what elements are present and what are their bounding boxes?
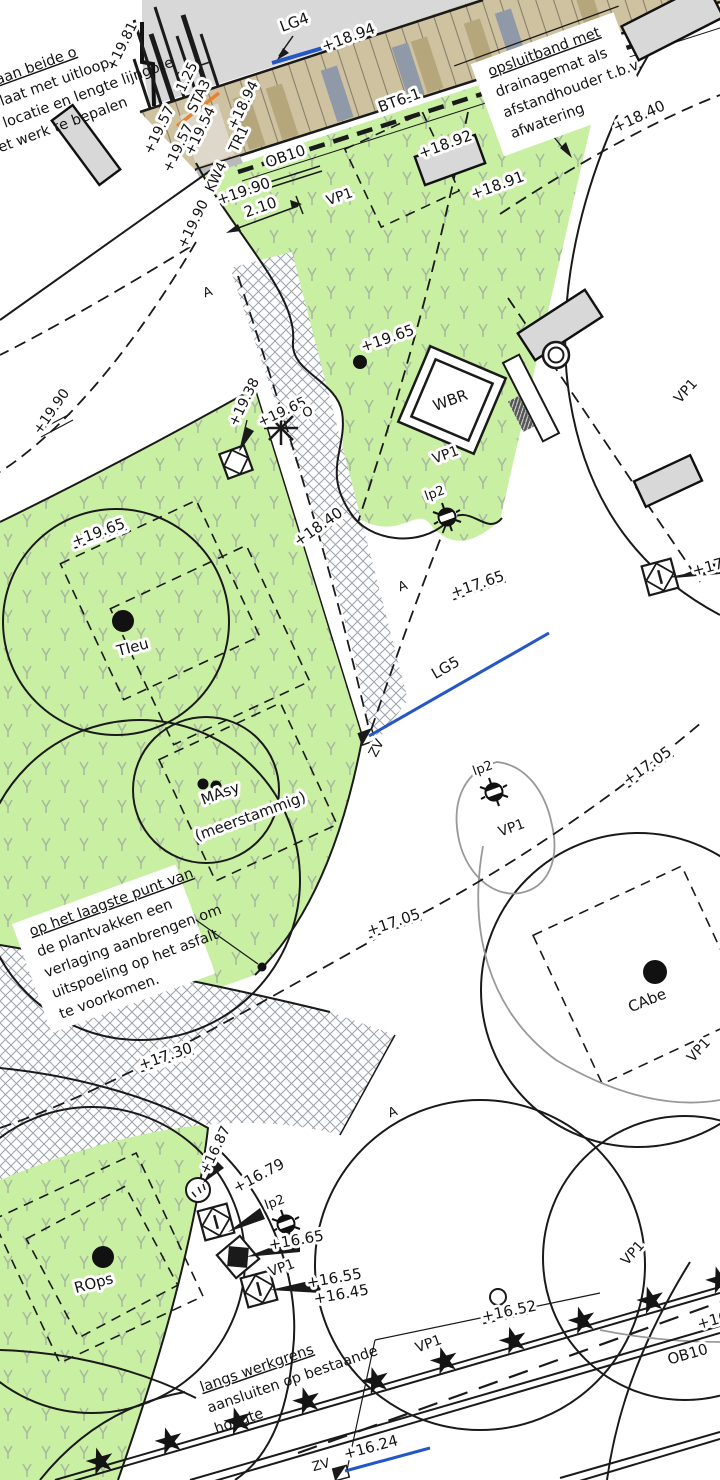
bollard-icon bbox=[543, 342, 569, 368]
tree-canopy-cabe bbox=[481, 833, 720, 1147]
marker-circle-icon bbox=[186, 1178, 210, 1202]
zv-marker-icon bbox=[333, 1465, 350, 1480]
point-label: A bbox=[201, 284, 215, 301]
leader-dot bbox=[258, 963, 267, 972]
drain-inlet-icon bbox=[198, 1204, 235, 1241]
area-code-label: VP1 bbox=[684, 1035, 714, 1066]
drain-inlet-icon bbox=[217, 1236, 259, 1278]
planting-areas bbox=[0, 42, 610, 1480]
tree-code-label: CAbe bbox=[625, 985, 668, 1016]
tree-trunk-cabe bbox=[643, 960, 667, 984]
spot-dot bbox=[353, 355, 367, 369]
elevation-label: +19.90 bbox=[175, 197, 212, 251]
elevation-label: +17.0 bbox=[690, 551, 720, 580]
elevation-label: +17.65 bbox=[448, 567, 506, 602]
tree-trunk-tieu bbox=[112, 610, 134, 632]
site-plan-page: ★ ★ ★ ★ ★ ★ ★ ★ ★ ★ ★ ★ ★ bbox=[0, 0, 720, 1480]
area-code-label: VP1 bbox=[496, 816, 527, 840]
elevation-label: +16.79 bbox=[230, 1155, 287, 1197]
station-label: OB10 bbox=[665, 1340, 710, 1369]
plan-canvas: ★ ★ ★ ★ ★ ★ ★ ★ ★ ★ ★ ★ ★ bbox=[0, 0, 720, 1480]
point-label: A bbox=[386, 1104, 400, 1121]
area-code-label: VP1 bbox=[671, 376, 701, 407]
tree-trunk-rops bbox=[92, 1246, 114, 1268]
lg5-label: LG5 bbox=[428, 652, 463, 682]
elevation-label: +17.05 bbox=[619, 743, 675, 790]
zv-label: ZV bbox=[311, 1456, 332, 1475]
elevation-label: +16 bbox=[695, 1307, 720, 1333]
bench-object bbox=[634, 455, 702, 507]
arrowhead bbox=[228, 1208, 265, 1232]
lamppost-icon bbox=[480, 778, 508, 806]
point-label: A bbox=[396, 578, 410, 595]
elevation-label: +17.05 bbox=[364, 905, 422, 940]
lamppost-label: lp2 bbox=[263, 1192, 287, 1213]
lamppost-label: lp2 bbox=[471, 758, 495, 779]
area-code-label: VP1 bbox=[266, 1256, 297, 1280]
